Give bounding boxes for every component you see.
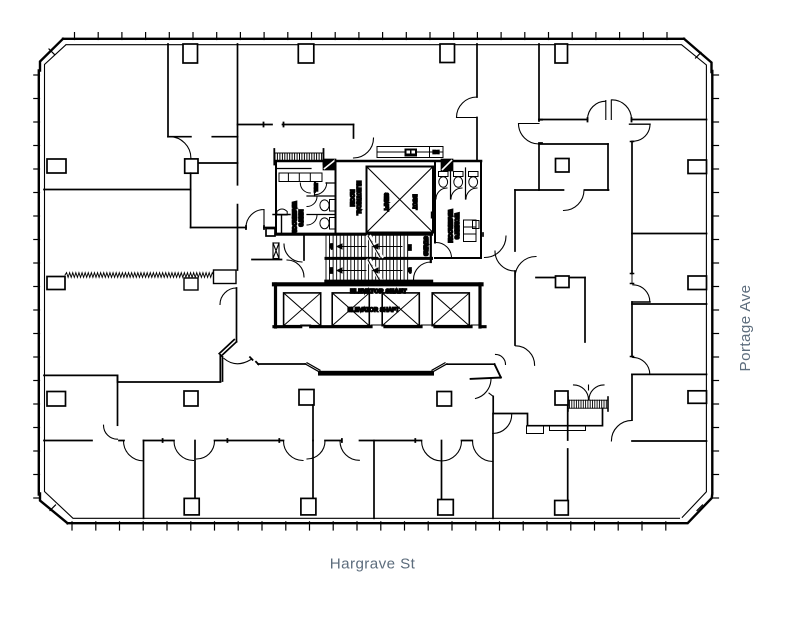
svg-text:DUCT: DUCT xyxy=(411,195,417,211)
svg-text:STAIRS: STAIRS xyxy=(422,236,428,256)
svg-text:DN: DN xyxy=(433,149,439,154)
svg-text:DN: DN xyxy=(329,268,334,274)
svg-text:Hargrave St: Hargrave St xyxy=(330,556,416,573)
svg-text:ELEVATOR SHAFT: ELEVATOR SHAFT xyxy=(350,289,407,295)
svg-text:Portage Ave: Portage Ave xyxy=(737,285,754,372)
svg-text:DN: DN xyxy=(408,245,413,251)
svg-text:UP: UP xyxy=(408,268,413,274)
svg-text:JAN.: JAN. xyxy=(314,183,319,193)
svg-text:ELEVATOR SHAFT: ELEVATOR SHAFT xyxy=(348,308,400,314)
svg-text:SHAFT: SHAFT xyxy=(383,193,389,212)
svg-text:UP: UP xyxy=(329,244,334,250)
svg-text:WOMEN'SWASHROOM: WOMEN'SWASHROOM xyxy=(447,210,459,243)
